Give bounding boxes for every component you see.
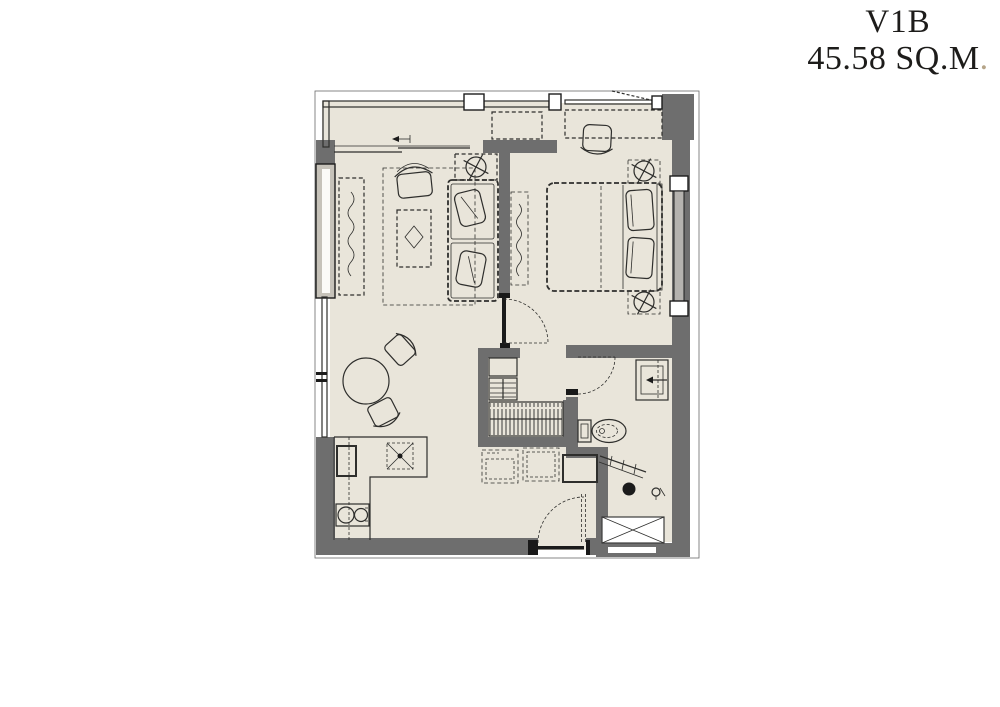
left-glass-mullion-1 <box>316 372 327 375</box>
wall-bedroom-west <box>499 146 510 293</box>
wall-wardrobe-top <box>478 348 520 358</box>
shaft-louver <box>608 547 656 553</box>
right-window-frame-bottom <box>670 301 688 316</box>
wall-balcony-divider <box>483 140 557 153</box>
floor-plan-svg <box>0 0 1000 707</box>
right-window-glass <box>674 191 684 301</box>
entrance-threshold <box>538 546 584 550</box>
floor-drain <box>623 483 636 496</box>
wall-wardrobe-bottom <box>478 437 573 447</box>
left-glass-panel <box>322 297 327 437</box>
bedroom-window-glass <box>565 100 652 104</box>
wall-wardrobe-right <box>563 400 573 440</box>
sink-drain <box>398 454 403 459</box>
wardrobe-hanging-rail <box>489 402 563 436</box>
wall-bottom <box>316 538 538 555</box>
window-post-left <box>464 94 484 110</box>
vanity-sink <box>636 360 668 400</box>
bedroom-window-frame <box>652 96 662 109</box>
wall-left-lower <box>316 437 335 555</box>
ac-shaft <box>602 517 664 553</box>
left-window-inner <box>322 169 330 293</box>
wall-wardrobe-left <box>478 348 488 447</box>
right-window-frame-top <box>670 176 688 191</box>
wall-bath-top <box>566 345 690 358</box>
window-post-right <box>549 94 561 110</box>
bedroom-door-leaf <box>502 297 506 344</box>
left-glass-mullion-2 <box>316 379 327 382</box>
wall-left-upper <box>316 140 335 166</box>
